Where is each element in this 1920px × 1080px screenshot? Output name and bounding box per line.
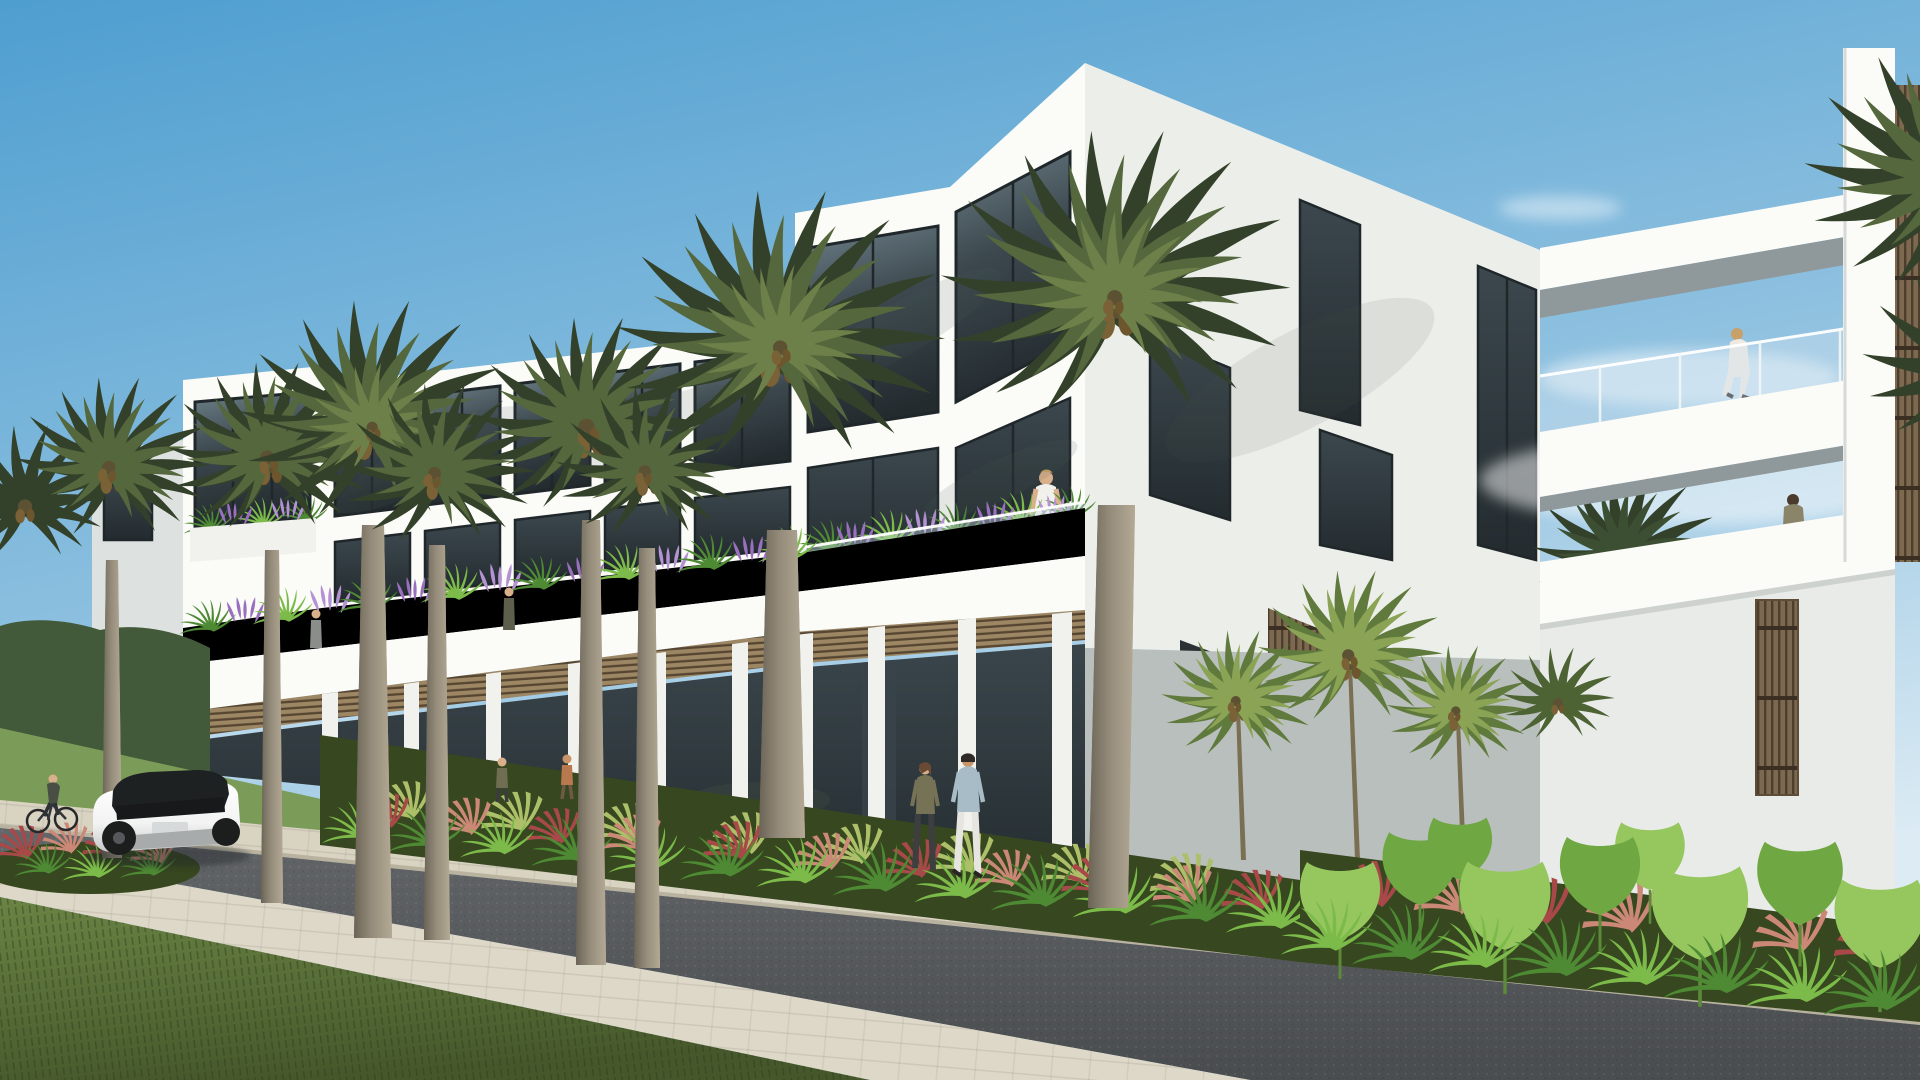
render-canvas: Architectural rendering: modern white th… — [0, 0, 1920, 1080]
wood-slat-screen — [1756, 600, 1798, 795]
architectural-rendering: Architectural rendering: modern white th… — [0, 0, 1920, 1080]
